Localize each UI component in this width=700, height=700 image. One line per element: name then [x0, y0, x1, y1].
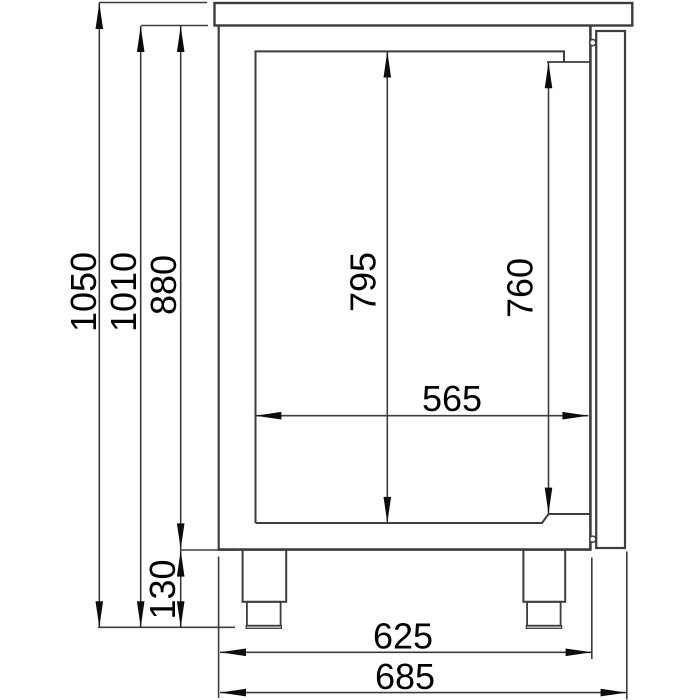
dim-label-overall-height: 1050 [63, 252, 104, 332]
rear-leg-foot [527, 602, 561, 626]
dim-label-interior-height: 795 [343, 252, 384, 312]
dim-label-body-height: 880 [143, 255, 184, 315]
arrow-625-left [220, 649, 246, 657]
door-panel [596, 31, 625, 548]
arrow-1050-bottom [96, 601, 104, 627]
front-leg-upper [243, 550, 287, 602]
technical-drawing-canvas: 1050 1010 880 795 760 130 565 625 685 [0, 0, 700, 700]
arrow-795-top [384, 52, 392, 78]
dim-label-height-under-counter: 1010 [103, 252, 144, 332]
arrow-565-left [255, 412, 281, 420]
arrow-795-bottom [384, 497, 392, 523]
arrow-685-left [220, 689, 246, 697]
door-hinge-top [590, 40, 596, 46]
arrow-685-right [601, 689, 627, 697]
dim-label-interior-depth: 565 [422, 378, 482, 419]
front-leg-foot [247, 602, 281, 626]
arrow-1010-top [137, 26, 145, 52]
arrow-1050-top [96, 3, 104, 29]
counter-top [215, 3, 633, 26]
front-leg-base [246, 626, 281, 629]
arrow-565-right [562, 412, 588, 420]
arrow-880-top [177, 26, 185, 52]
side-section-drawing: 1050 1010 880 795 760 130 565 625 685 [0, 0, 700, 700]
dim-label-interior-height-at-door: 760 [500, 258, 541, 318]
door-hinge-bottom [590, 536, 596, 542]
arrow-625-right [566, 649, 592, 657]
dim-label-body-depth: 625 [373, 616, 433, 657]
arrow-880-bottom [177, 523, 185, 549]
rear-leg-upper [523, 550, 565, 602]
arrow-760-bottom [545, 488, 553, 514]
dim-label-overall-depth: 685 [375, 656, 435, 697]
rear-leg-base [526, 626, 561, 629]
arrow-760-top [545, 62, 553, 88]
inner-liner-bottom [256, 514, 590, 523]
dim-label-leg-height: 130 [142, 559, 183, 619]
